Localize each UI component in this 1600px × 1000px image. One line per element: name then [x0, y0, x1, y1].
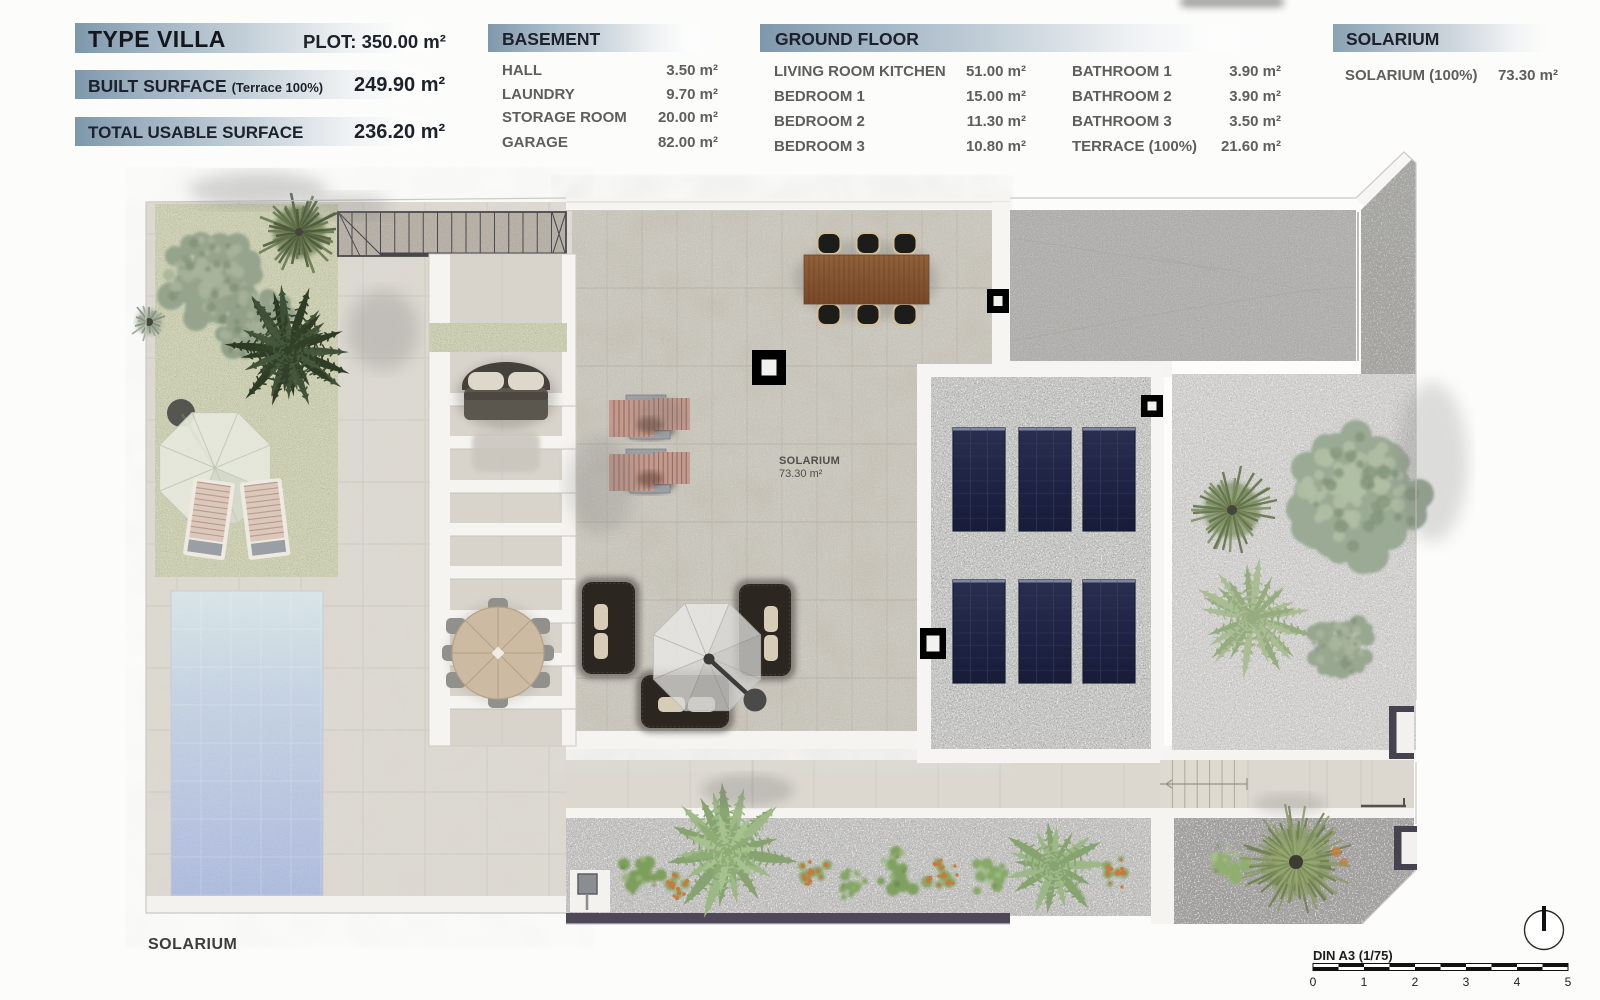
svg-text:0: 0 — [1310, 975, 1317, 989]
svg-text:5: 5 — [1565, 975, 1572, 989]
svg-text:3: 3 — [1463, 975, 1470, 989]
svg-text:73.30 m²: 73.30 m² — [779, 468, 823, 480]
svg-text:2: 2 — [1412, 975, 1419, 989]
svg-text:4: 4 — [1514, 975, 1521, 989]
svg-text:1: 1 — [1361, 975, 1368, 989]
svg-text:SOLARIUM: SOLARIUM — [779, 455, 840, 467]
svg-text:DIN A3 (1/75): DIN A3 (1/75) — [1313, 948, 1393, 963]
